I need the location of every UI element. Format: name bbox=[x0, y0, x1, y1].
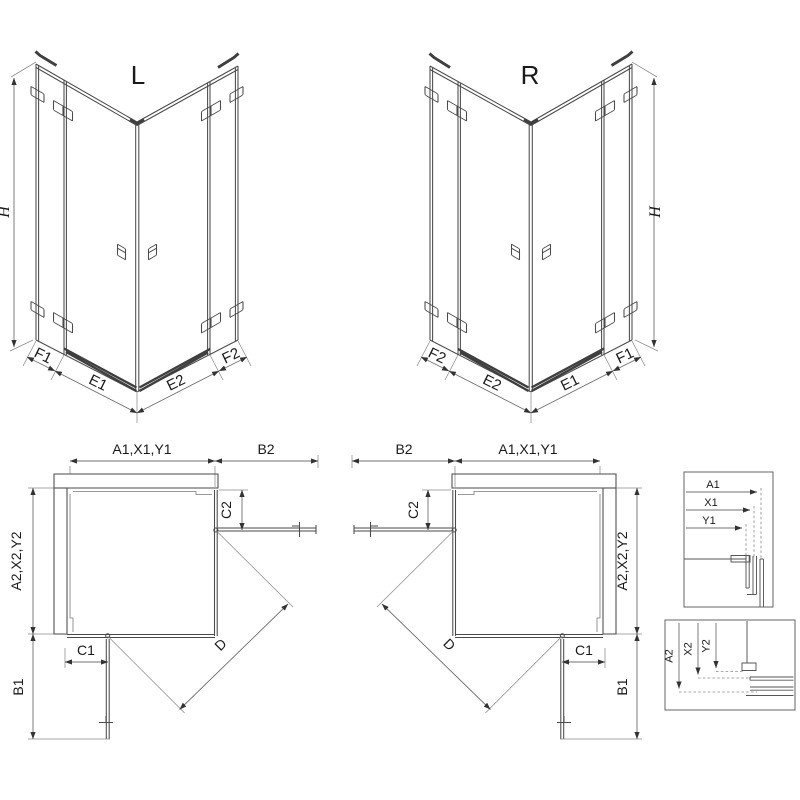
plan-right-b2-label: B2 bbox=[395, 441, 412, 457]
plan-left-c1-label: C1 bbox=[77, 642, 95, 658]
labels-layer: L H F1 E1 E2 F2 R H F2 E2 E1 F1 A1,X1,Y1… bbox=[0, 60, 720, 696]
wall-bracket-icon bbox=[230, 86, 243, 102]
iso-left-title: L bbox=[131, 60, 145, 90]
iso-right-height-label: H bbox=[647, 205, 664, 219]
wall-bracket-icon bbox=[31, 301, 44, 317]
iso-vertical-edges bbox=[36, 64, 238, 392]
plan-right-c2-label: C2 bbox=[405, 501, 421, 519]
detail-x1-label: X1 bbox=[704, 497, 717, 509]
detail-x2-label: X2 bbox=[683, 642, 695, 655]
detail-a2-label: A2 bbox=[664, 649, 676, 662]
detail-box-border bbox=[665, 620, 795, 710]
detail-depth-profile-box bbox=[665, 620, 795, 710]
plan-right-depth-label: A2,X2,Y2 bbox=[614, 531, 630, 590]
iso-right-title: R bbox=[521, 60, 540, 90]
detail-profile-section bbox=[742, 621, 794, 696]
iso-view-geometry bbox=[10, 52, 251, 424]
wall-bracket-icon bbox=[31, 86, 44, 102]
plan-left-depth-label: A2,X2,Y2 bbox=[8, 531, 24, 590]
plan-right-wall-hatched bbox=[452, 474, 616, 634]
detail-y1-label: Y1 bbox=[702, 515, 715, 527]
detail-profile-section bbox=[684, 556, 764, 607]
plan-view-geometry-mirrored bbox=[352, 455, 642, 739]
detail-reference-dashes bbox=[746, 488, 761, 559]
plan-glass-panels bbox=[67, 490, 217, 638]
door-handle-icon bbox=[118, 244, 126, 260]
door-handle-icon bbox=[292, 522, 300, 537]
door-handle-icon bbox=[99, 716, 113, 723]
plan-view-geometry bbox=[28, 455, 318, 739]
detail-width-profile-box bbox=[684, 472, 773, 607]
plan-left-top-width-label: A1,X1,Y1 bbox=[112, 441, 171, 457]
plan-left-b1-label: B1 bbox=[10, 678, 26, 695]
plan-right-b1-label: B1 bbox=[614, 678, 630, 695]
plan-open-door-top bbox=[217, 525, 316, 534]
door-handle-icon bbox=[149, 244, 157, 260]
plan-left-b2-label: B2 bbox=[257, 441, 274, 457]
wall-bracket-icon bbox=[230, 301, 243, 317]
hinge-icon bbox=[202, 313, 221, 333]
iso-view-geometry-mirrored bbox=[417, 52, 658, 424]
iso-left-height-label: H bbox=[0, 205, 13, 219]
diagonal-dimension-line bbox=[180, 604, 288, 710]
detail-a1-label: A1 bbox=[706, 479, 719, 491]
plan-open-door-bottom bbox=[106, 639, 109, 739]
iso-extension-lines bbox=[10, 62, 251, 423]
plan-left-c2-label: C2 bbox=[218, 501, 234, 519]
plan-right-top-width-label: A1,X1,Y1 bbox=[498, 441, 557, 457]
hinge-icon bbox=[54, 101, 73, 121]
plan-wall-profiles bbox=[70, 492, 212, 633]
hinge-icon bbox=[54, 313, 73, 333]
detail-y2-label: Y2 bbox=[701, 639, 713, 652]
shower-enclosure-technical-drawing: L H F1 E1 E2 F2 R H F2 E2 E1 F1 A1,X1,Y1… bbox=[0, 0, 800, 800]
plan-extension-lines bbox=[28, 455, 318, 739]
plan-left-wall-hatched bbox=[54, 474, 218, 634]
hinge-icon bbox=[202, 101, 221, 121]
detail-reference-dashes bbox=[679, 672, 757, 693]
plan-right-c1-label: C1 bbox=[575, 642, 593, 658]
